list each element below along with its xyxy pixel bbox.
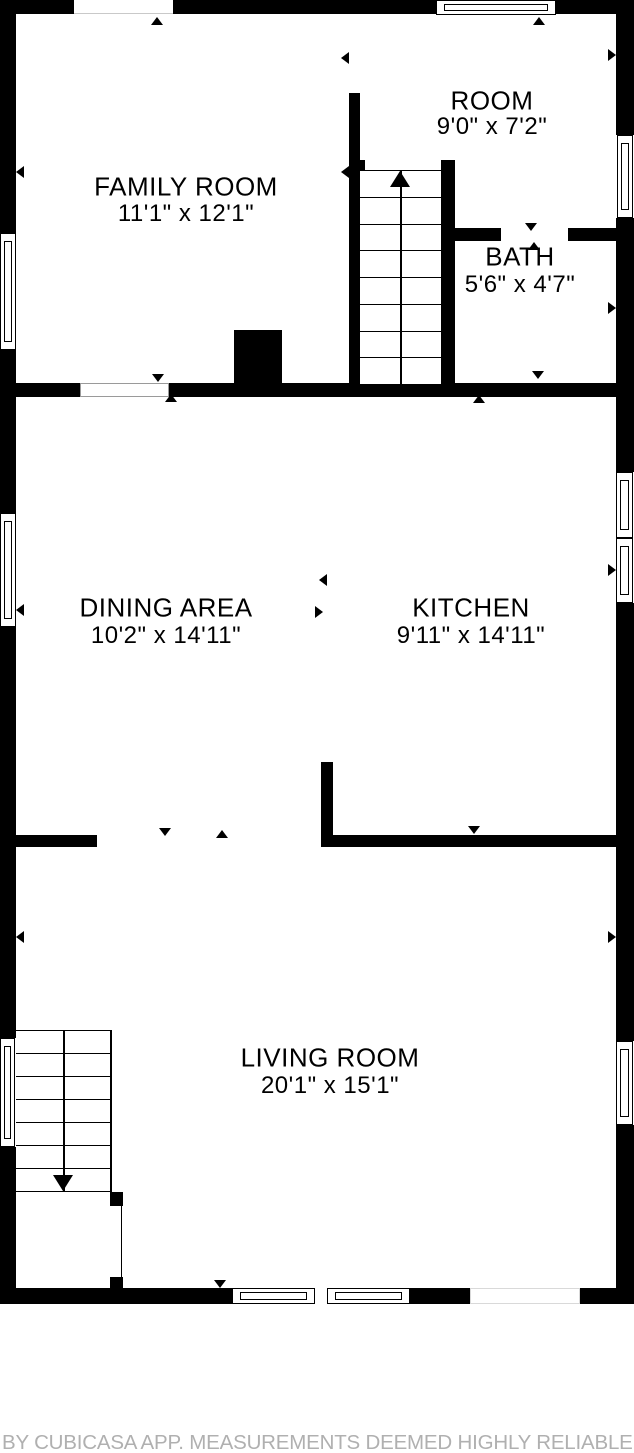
top-wall-mid bbox=[173, 0, 436, 14]
direction-arrow bbox=[16, 166, 24, 178]
direction-arrow bbox=[341, 166, 349, 178]
window-pane bbox=[4, 241, 12, 342]
window-left-dining bbox=[0, 513, 16, 627]
stair2-post-lower bbox=[110, 1277, 123, 1291]
opening-living-bottom bbox=[470, 1288, 580, 1304]
left-wall-mid2 bbox=[0, 627, 16, 1038]
window-bottom-right bbox=[327, 1288, 410, 1304]
room-label-dining-area: DINING AREA bbox=[79, 593, 252, 624]
bottom-wall-mid bbox=[410, 1288, 470, 1304]
window-left-family bbox=[0, 233, 16, 350]
stair2-post-upper bbox=[110, 1192, 123, 1206]
staircase-main bbox=[360, 170, 441, 385]
stair2-rail bbox=[110, 1030, 112, 1192]
opening-family-dining bbox=[80, 383, 169, 397]
direction-arrow bbox=[214, 1280, 226, 1288]
bath-top-wall-right bbox=[568, 228, 616, 241]
direction-arrow bbox=[341, 52, 349, 64]
room-label-kitchen: KITCHEN bbox=[412, 593, 530, 624]
right-wall-lower bbox=[616, 1125, 634, 1304]
left-wall-mid1 bbox=[0, 350, 16, 513]
room-dims-kitchen: 9'11" x 14'11" bbox=[397, 622, 545, 650]
direction-arrow bbox=[533, 17, 545, 25]
window-right-kitchen-lower bbox=[616, 538, 633, 603]
room-dims-family-room: 11'1" x 12'1" bbox=[118, 200, 254, 228]
chimney bbox=[234, 330, 282, 397]
direction-arrow bbox=[315, 606, 323, 618]
stair-direction-line bbox=[400, 170, 402, 385]
stair-direction-line bbox=[63, 1030, 65, 1192]
right-wall-mid1 bbox=[616, 218, 634, 472]
room-label-bath: BATH bbox=[485, 242, 554, 273]
direction-arrow bbox=[165, 394, 177, 402]
room-label-living-room: LIVING ROOM bbox=[241, 1043, 420, 1074]
room-dims-living-room: 20'1" x 15'1" bbox=[261, 1072, 399, 1100]
bath-top-wall-left bbox=[441, 228, 501, 241]
direction-arrow bbox=[151, 17, 163, 25]
direction-arrow bbox=[216, 830, 228, 838]
room-dims-room: 9'0" x 7'2" bbox=[437, 113, 547, 141]
basement-door-line bbox=[121, 1206, 122, 1277]
window-pane bbox=[620, 1049, 629, 1117]
direction-arrow bbox=[319, 574, 327, 586]
direction-arrow bbox=[447, 302, 455, 314]
floor-plan: BY CUBICASA APP. MEASUREMENTS DEEMED HIG… bbox=[0, 0, 634, 1453]
family-dining-wall-left bbox=[16, 383, 80, 397]
stair-direction-arrow bbox=[53, 1175, 73, 1191]
direction-arrow bbox=[608, 931, 616, 943]
footer-credit: BY CUBICASA APP. MEASUREMENTS DEEMED HIG… bbox=[2, 1431, 634, 1453]
stair-left-wall bbox=[349, 93, 360, 385]
kitchen-wall-bottom bbox=[321, 835, 616, 847]
window-pane bbox=[4, 521, 12, 619]
window-bottom-left bbox=[232, 1288, 315, 1304]
dining-wall-bottom bbox=[16, 835, 97, 847]
direction-arrow bbox=[525, 223, 537, 231]
window-pane bbox=[620, 546, 629, 595]
window-pane bbox=[444, 4, 548, 11]
direction-arrow bbox=[16, 604, 24, 616]
direction-arrow bbox=[468, 826, 480, 834]
direction-arrow bbox=[608, 49, 616, 61]
left-wall-lower bbox=[0, 1147, 16, 1304]
direction-arrow bbox=[159, 828, 171, 836]
direction-arrow bbox=[608, 302, 616, 314]
direction-arrow bbox=[473, 395, 485, 403]
direction-arrow bbox=[16, 931, 24, 943]
window-pane bbox=[240, 1292, 307, 1300]
left-wall-upper bbox=[0, 0, 16, 233]
room-dims-dining-area: 10'2" x 14'11" bbox=[91, 622, 241, 650]
direction-arrow bbox=[608, 564, 616, 576]
window-right-room bbox=[617, 135, 633, 218]
window-right-kitchen-upper bbox=[616, 472, 633, 538]
window-pane bbox=[335, 1292, 402, 1300]
window-pane bbox=[4, 1046, 11, 1139]
stair-right-wall bbox=[441, 160, 455, 385]
window-right-living bbox=[616, 1041, 633, 1125]
window-left-stairs bbox=[0, 1038, 15, 1147]
right-wall-upper bbox=[616, 0, 634, 135]
room-label-room: ROOM bbox=[451, 86, 534, 117]
staircase-basement bbox=[16, 1030, 110, 1192]
direction-arrow bbox=[152, 374, 164, 382]
direction-arrow bbox=[532, 371, 544, 379]
window-pane bbox=[621, 143, 629, 210]
room-label-family-room: FAMILY ROOM bbox=[94, 172, 278, 203]
room-dims-bath: 5'6" x 4'7" bbox=[465, 271, 575, 299]
opening-family-top bbox=[74, 0, 173, 14]
window-pane bbox=[620, 480, 629, 530]
bottom-wall-right bbox=[580, 1288, 634, 1304]
stair-direction-arrow bbox=[390, 171, 410, 187]
right-wall-mid2 bbox=[616, 603, 634, 1041]
window-top-room bbox=[436, 0, 556, 15]
